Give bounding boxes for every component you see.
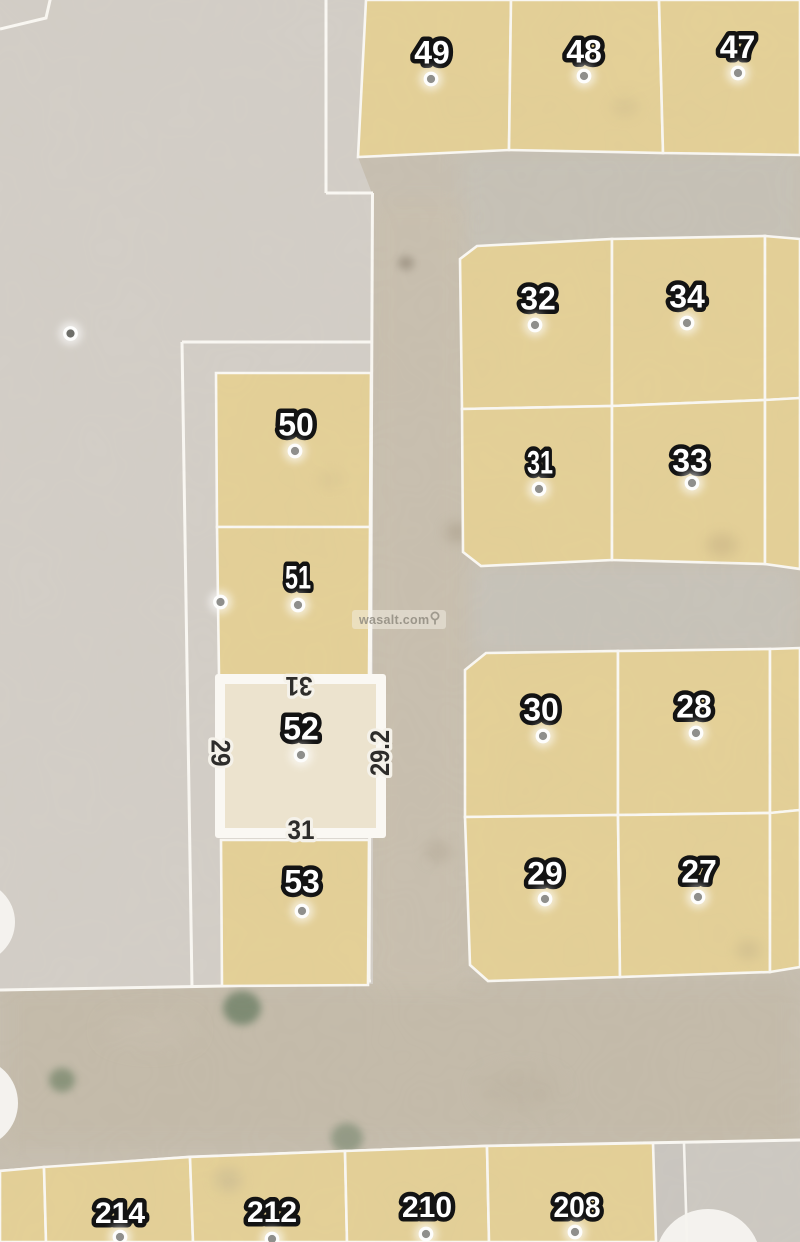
svg-text:50: 50: [278, 407, 314, 443]
svg-text:28: 28: [676, 689, 712, 725]
svg-text:48: 48: [566, 34, 602, 70]
svg-text:27: 27: [681, 854, 717, 890]
svg-text:30: 30: [523, 692, 559, 728]
svg-text:53: 53: [284, 864, 320, 900]
svg-text:49: 49: [414, 35, 450, 71]
svg-text:212: 212: [247, 1196, 297, 1229]
svg-text:29: 29: [206, 740, 236, 767]
svg-text:32: 32: [520, 281, 556, 317]
svg-text:210: 210: [402, 1191, 452, 1224]
svg-text:47: 47: [720, 29, 756, 65]
svg-text:51: 51: [285, 560, 311, 596]
svg-text:31: 31: [527, 445, 553, 481]
svg-text:31: 31: [286, 671, 313, 701]
svg-text:29: 29: [527, 856, 563, 892]
svg-text:214: 214: [95, 1197, 145, 1230]
svg-text:29.2: 29.2: [365, 730, 395, 776]
svg-text:wasalt.com: wasalt.com: [358, 613, 429, 627]
svg-text:208: 208: [554, 1191, 601, 1224]
svg-text:52: 52: [283, 711, 319, 747]
svg-text:34: 34: [669, 279, 705, 315]
svg-text:31: 31: [288, 815, 315, 845]
